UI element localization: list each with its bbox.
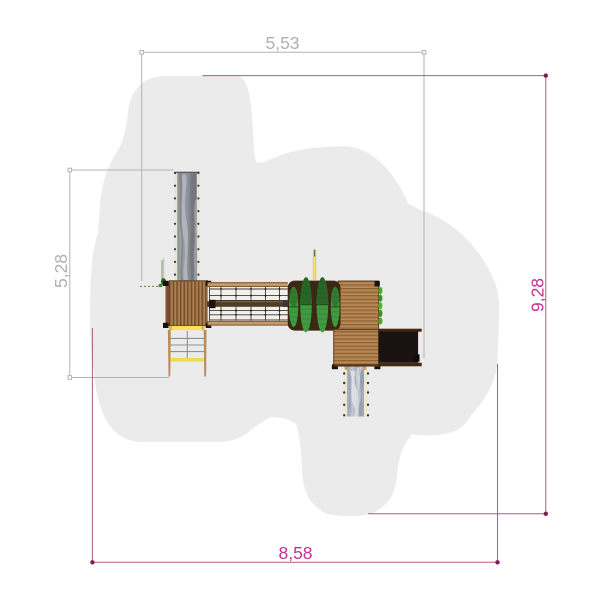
svg-text:9,28: 9,28 <box>528 278 548 312</box>
svg-text:5,28: 5,28 <box>51 254 71 288</box>
svg-text:8,58: 8,58 <box>278 543 312 563</box>
svg-text:5,53: 5,53 <box>265 33 299 53</box>
